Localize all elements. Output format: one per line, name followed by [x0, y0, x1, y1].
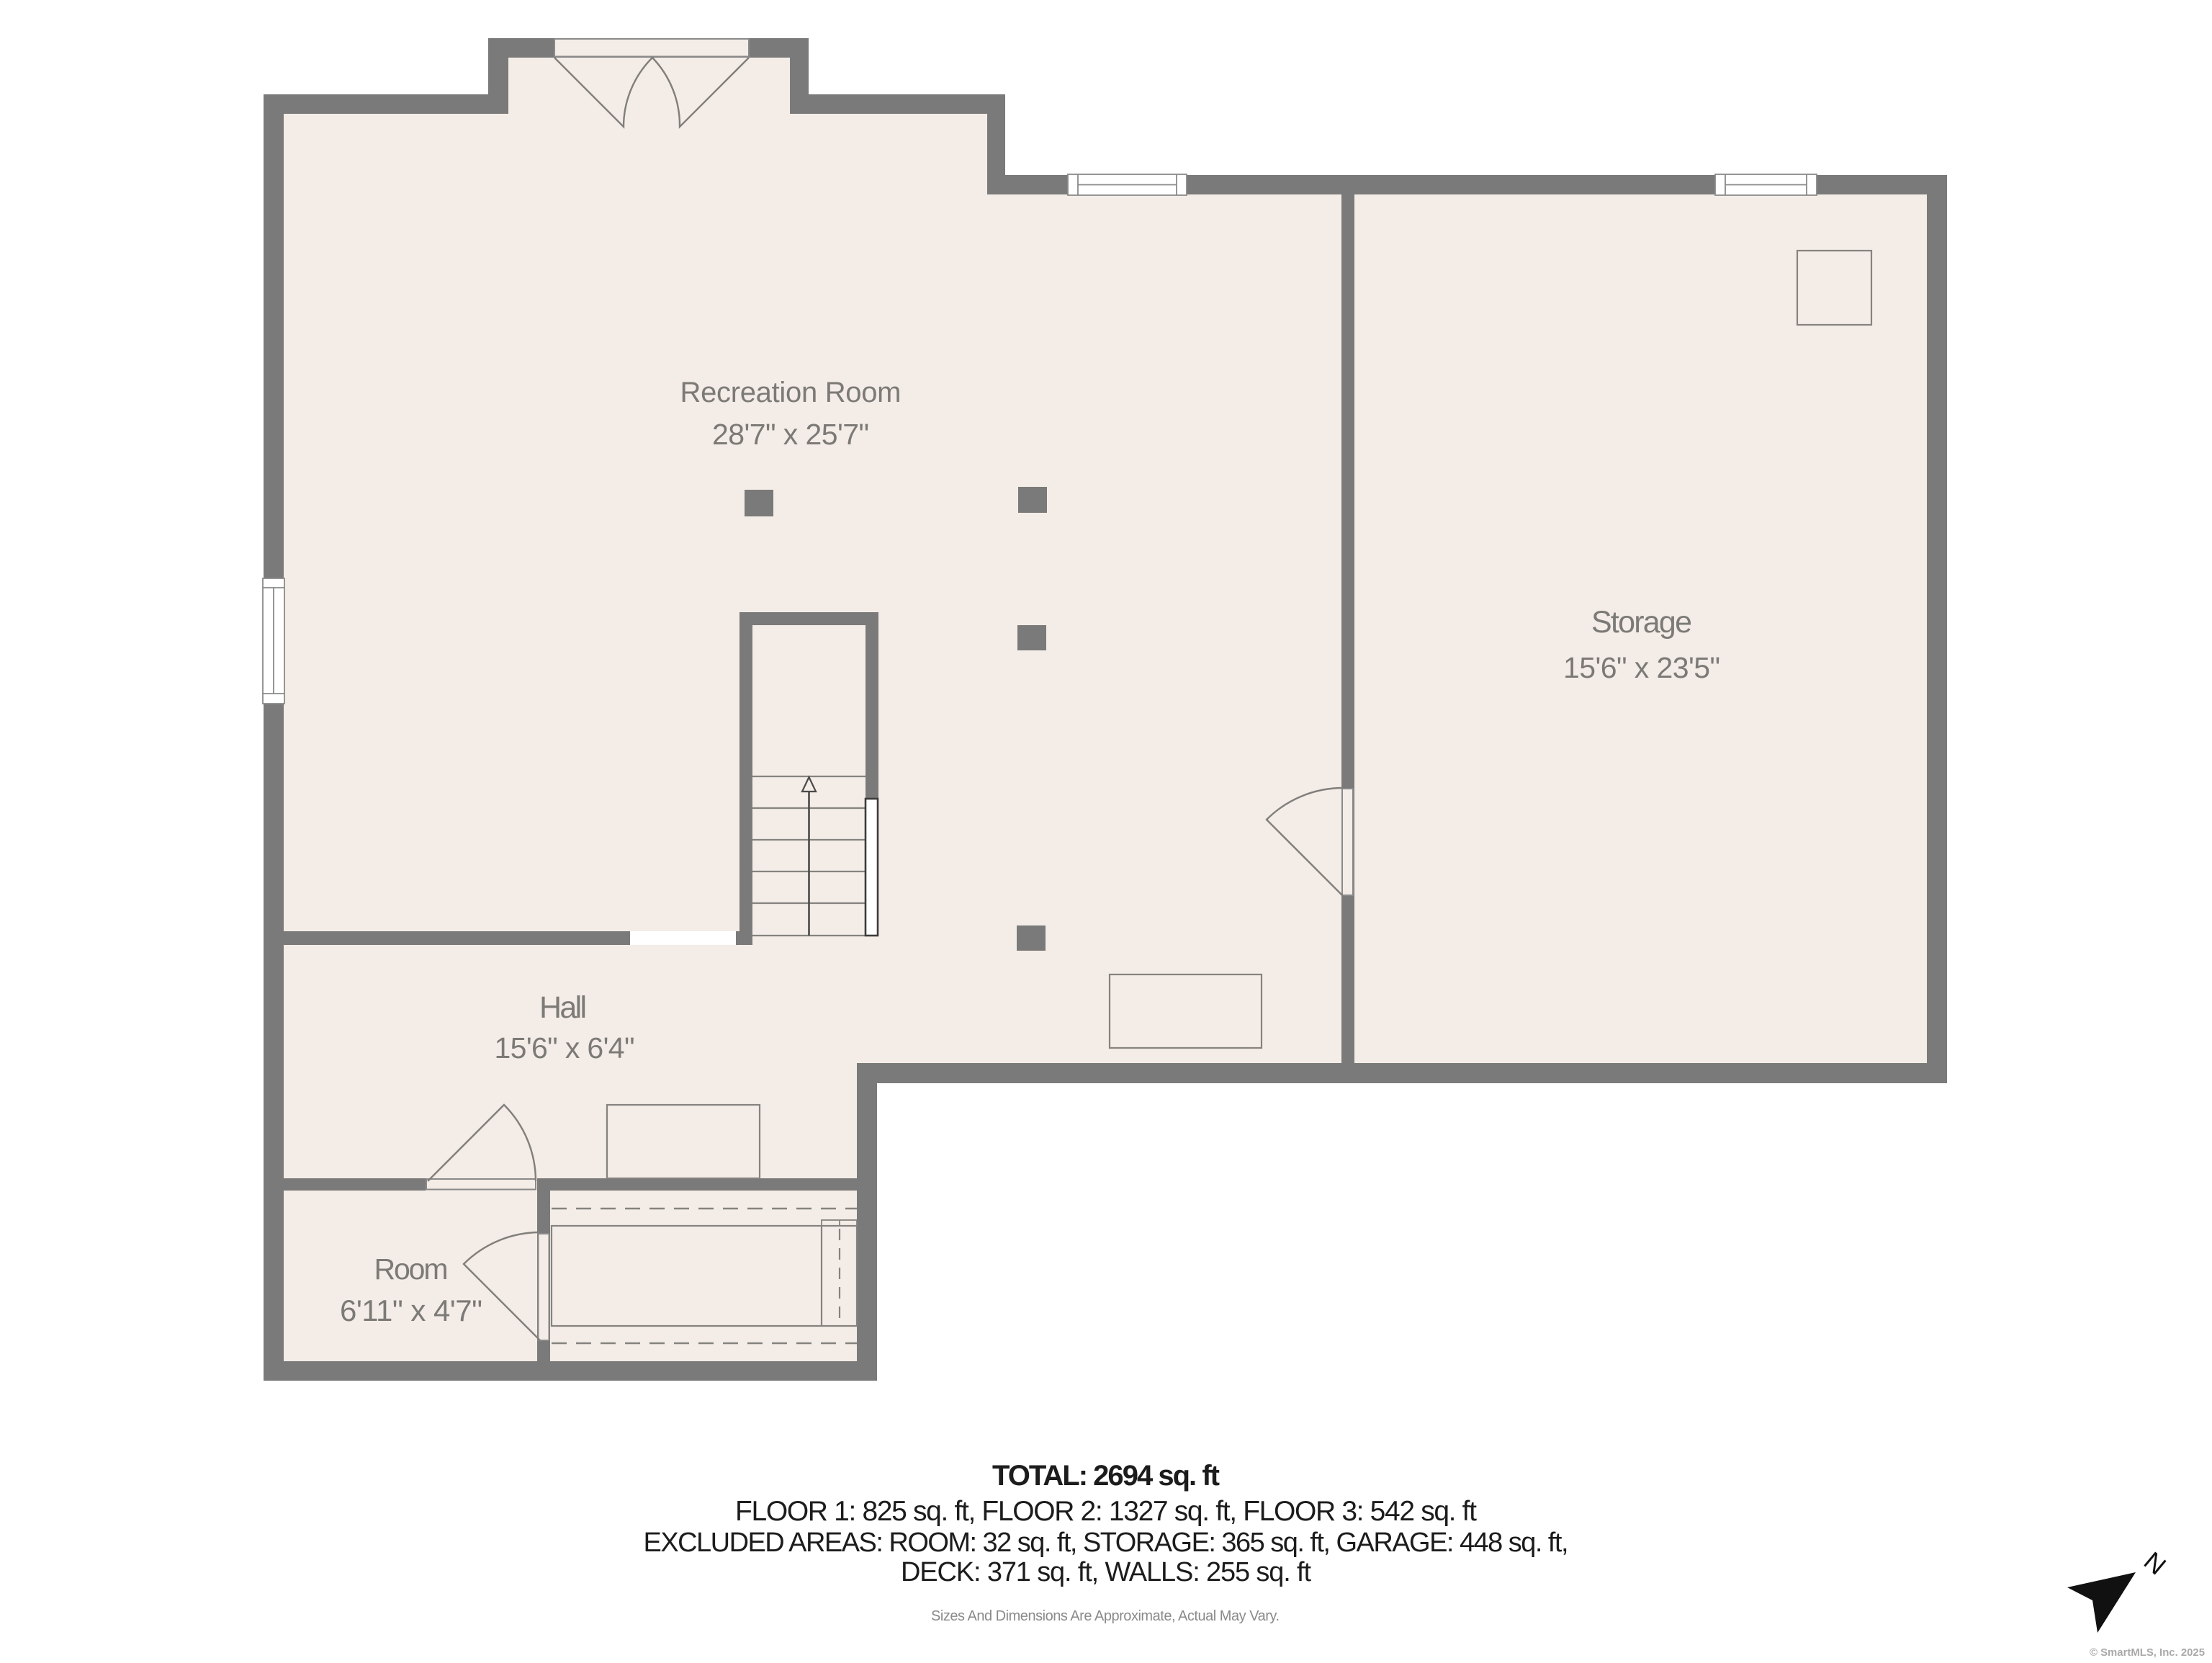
svg-text:Hall: Hall: [539, 990, 587, 1025]
svg-text:28'7" x 25'7": 28'7" x 25'7": [712, 418, 869, 451]
svg-text:DECK: 371 sq. ft, WALLS: 255 s: DECK: 371 sq. ft, WALLS: 255 sq. ft: [901, 1557, 1311, 1587]
svg-text:15'6" x 6'4": 15'6" x 6'4": [495, 1031, 635, 1064]
svg-text:Recreation Room: Recreation Room: [680, 377, 902, 408]
svg-text:Room: Room: [374, 1252, 449, 1286]
svg-text:FLOOR 1: 825 sq. ft, FLOOR 2:: FLOOR 1: 825 sq. ft, FLOOR 2: 1327 sq. f…: [735, 1496, 1477, 1527]
svg-text:EXCLUDED AREAS: ROOM: 32 sq. f: EXCLUDED AREAS: ROOM: 32 sq. ft, STORAGE…: [644, 1528, 1569, 1558]
svg-text:Storage: Storage: [1591, 605, 1692, 640]
svg-text:TOTAL: 2694 sq. ft: TOTAL: 2694 sq. ft: [992, 1460, 1220, 1492]
svg-text:15'6" x 23'5": 15'6" x 23'5": [1563, 651, 1720, 684]
svg-text:6'11" x 4'7": 6'11" x 4'7": [340, 1294, 482, 1327]
svg-text:Sizes And Dimensions Are Appro: Sizes And Dimensions Are Approximate, Ac…: [931, 1608, 1280, 1624]
svg-text:© SmartMLS, Inc. 2025: © SmartMLS, Inc. 2025: [2090, 1646, 2205, 1659]
